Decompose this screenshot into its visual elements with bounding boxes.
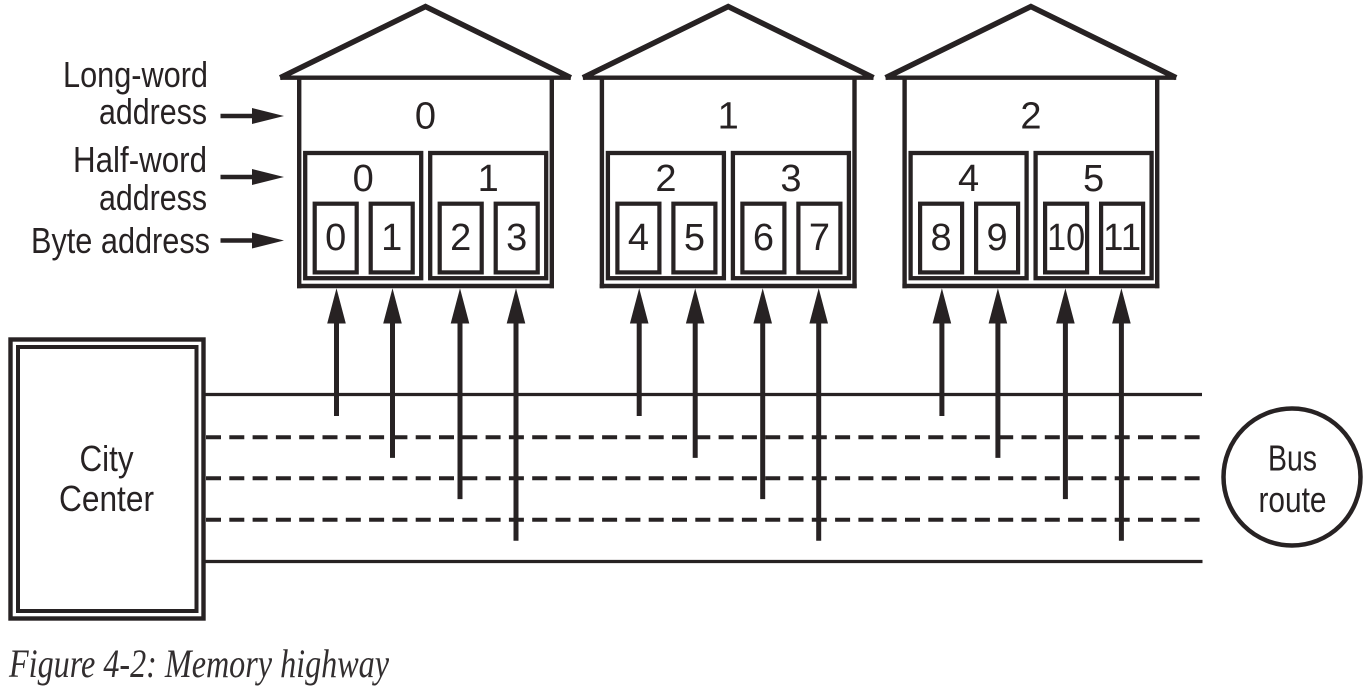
svg-text:0: 0 [353,158,374,200]
svg-text:5: 5 [684,217,705,259]
svg-text:4: 4 [958,158,979,200]
svg-text:6: 6 [753,217,774,259]
svg-text:2: 2 [1020,96,1041,138]
svg-text:2: 2 [450,217,471,259]
svg-text:Long-word: Long-word [63,54,208,95]
svg-text:Center: Center [59,478,154,519]
svg-text:0: 0 [415,96,436,138]
svg-text:City: City [80,438,134,479]
svg-text:5: 5 [1083,158,1104,200]
svg-text:7: 7 [809,217,830,259]
svg-text:1: 1 [478,158,499,200]
svg-text:3: 3 [506,217,527,259]
svg-text:4: 4 [628,217,649,259]
svg-text:Half-word: Half-word [73,139,207,180]
svg-text:8: 8 [931,217,952,259]
svg-text:Byte address: Byte address [31,220,210,261]
svg-text:address: address [99,91,207,132]
svg-text:Bus: Bus [1268,438,1317,479]
svg-text:3: 3 [780,158,801,200]
svg-text:route: route [1259,479,1327,520]
svg-text:9: 9 [987,217,1008,259]
svg-text:11: 11 [1103,217,1141,259]
svg-text:2: 2 [655,158,676,200]
svg-text:1: 1 [381,217,402,259]
svg-text:1: 1 [718,96,739,138]
svg-text:Figure 4-2: Memory highway: Figure 4-2: Memory highway [8,641,389,686]
svg-text:0: 0 [325,217,346,259]
svg-text:address: address [99,177,207,218]
svg-text:10: 10 [1047,217,1085,259]
